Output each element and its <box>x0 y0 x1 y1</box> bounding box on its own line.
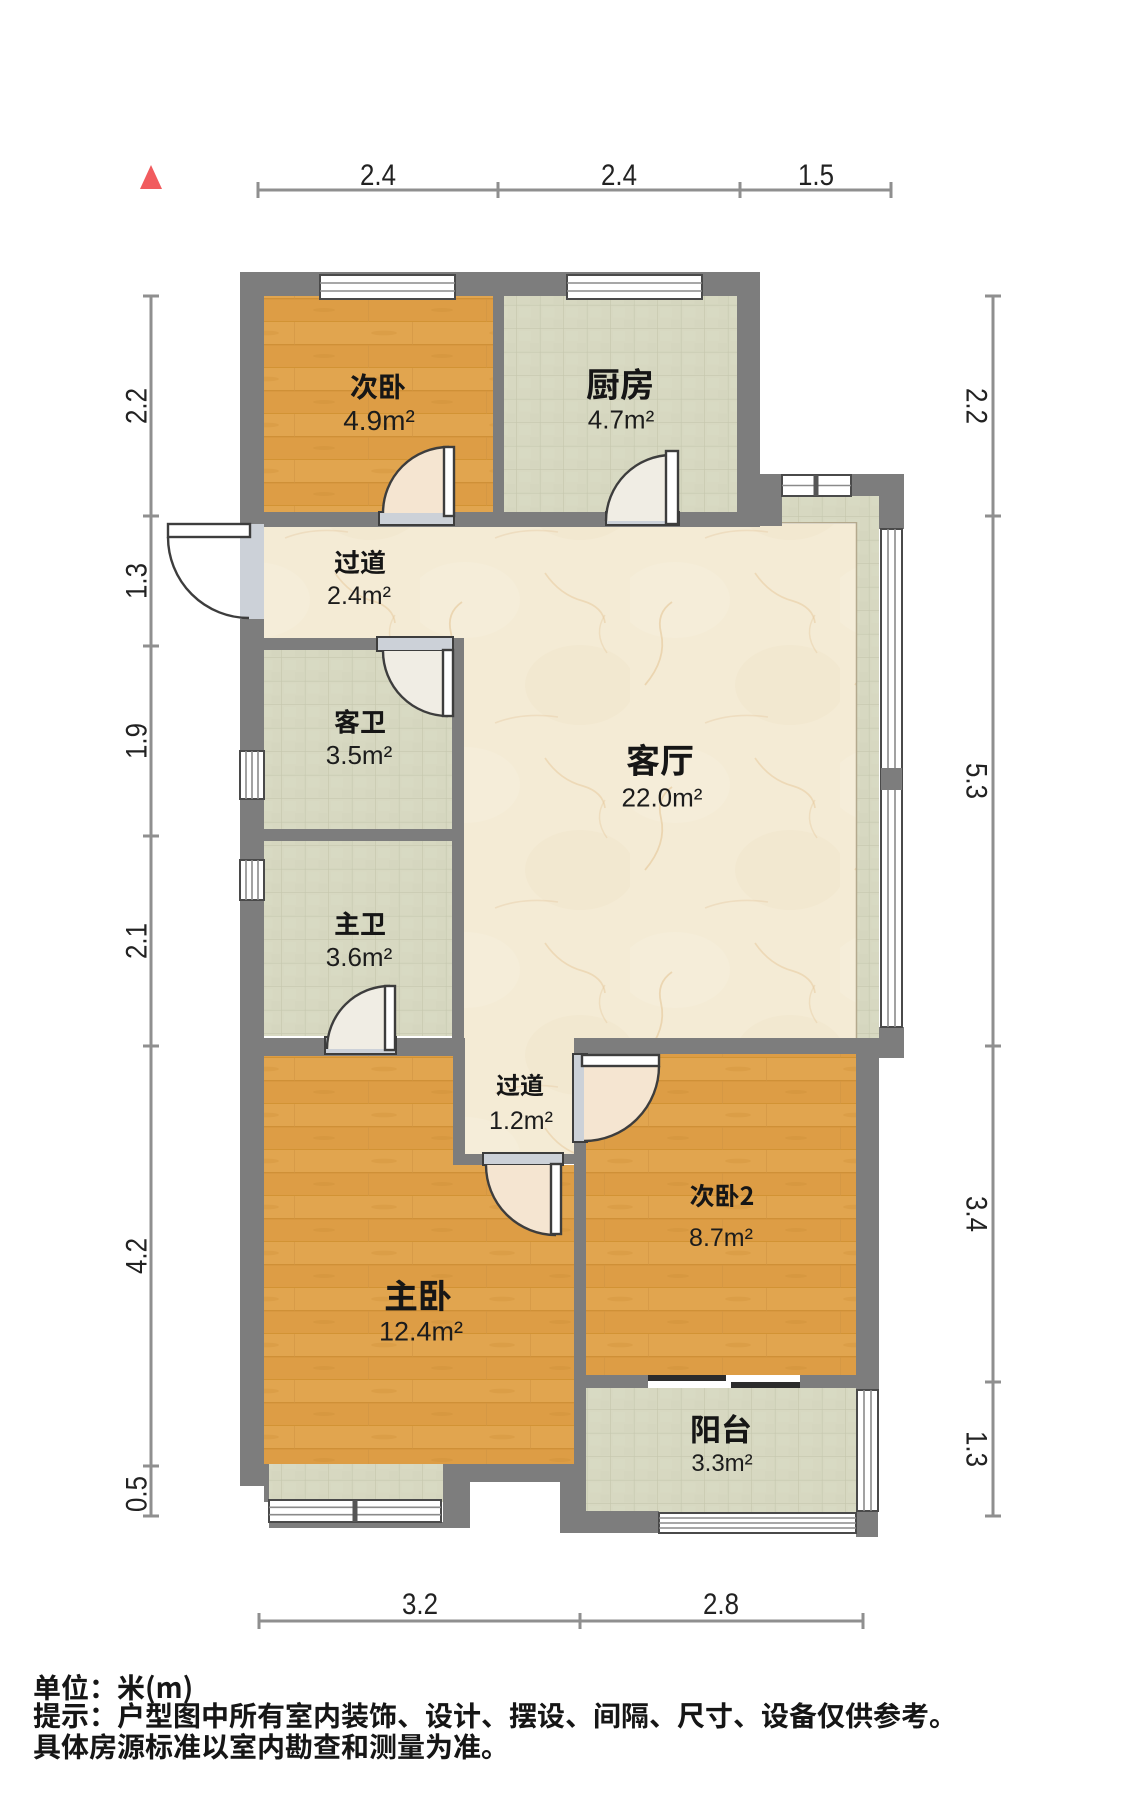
svg-text:3.2: 3.2 <box>402 1588 438 1621</box>
svg-text:22.0m²: 22.0m² <box>622 782 703 812</box>
svg-text:3.4: 3.4 <box>960 1196 993 1232</box>
svg-text:2.2: 2.2 <box>960 388 993 424</box>
svg-text:1.2m²: 1.2m² <box>489 1107 553 1135</box>
svg-text:3.5m²: 3.5m² <box>326 740 393 770</box>
svg-text:1.9: 1.9 <box>121 723 154 759</box>
svg-text:1.3: 1.3 <box>960 1431 993 1467</box>
svg-text:3.3m²: 3.3m² <box>691 1450 752 1477</box>
svg-text:0.5: 0.5 <box>121 1476 154 1512</box>
svg-text:2.8: 2.8 <box>703 1588 739 1621</box>
svg-text:4.2: 4.2 <box>121 1238 154 1274</box>
svg-text:4.9m²: 4.9m² <box>343 405 415 436</box>
svg-text:2.2: 2.2 <box>121 388 154 424</box>
svg-text:1.3: 1.3 <box>121 563 154 599</box>
svg-text:4.7m²: 4.7m² <box>588 404 655 434</box>
svg-text:8.7m²: 8.7m² <box>689 1224 753 1252</box>
svg-text:2.4m²: 2.4m² <box>327 582 391 610</box>
svg-text:2.4: 2.4 <box>601 159 637 192</box>
svg-text:2.1: 2.1 <box>121 923 154 959</box>
svg-text:1.5: 1.5 <box>798 159 834 192</box>
svg-text:5.3: 5.3 <box>960 763 993 799</box>
svg-text:3.6m²: 3.6m² <box>326 942 393 972</box>
svg-text:12.4m²: 12.4m² <box>379 1317 463 1347</box>
svg-text:2.4: 2.4 <box>360 159 396 192</box>
